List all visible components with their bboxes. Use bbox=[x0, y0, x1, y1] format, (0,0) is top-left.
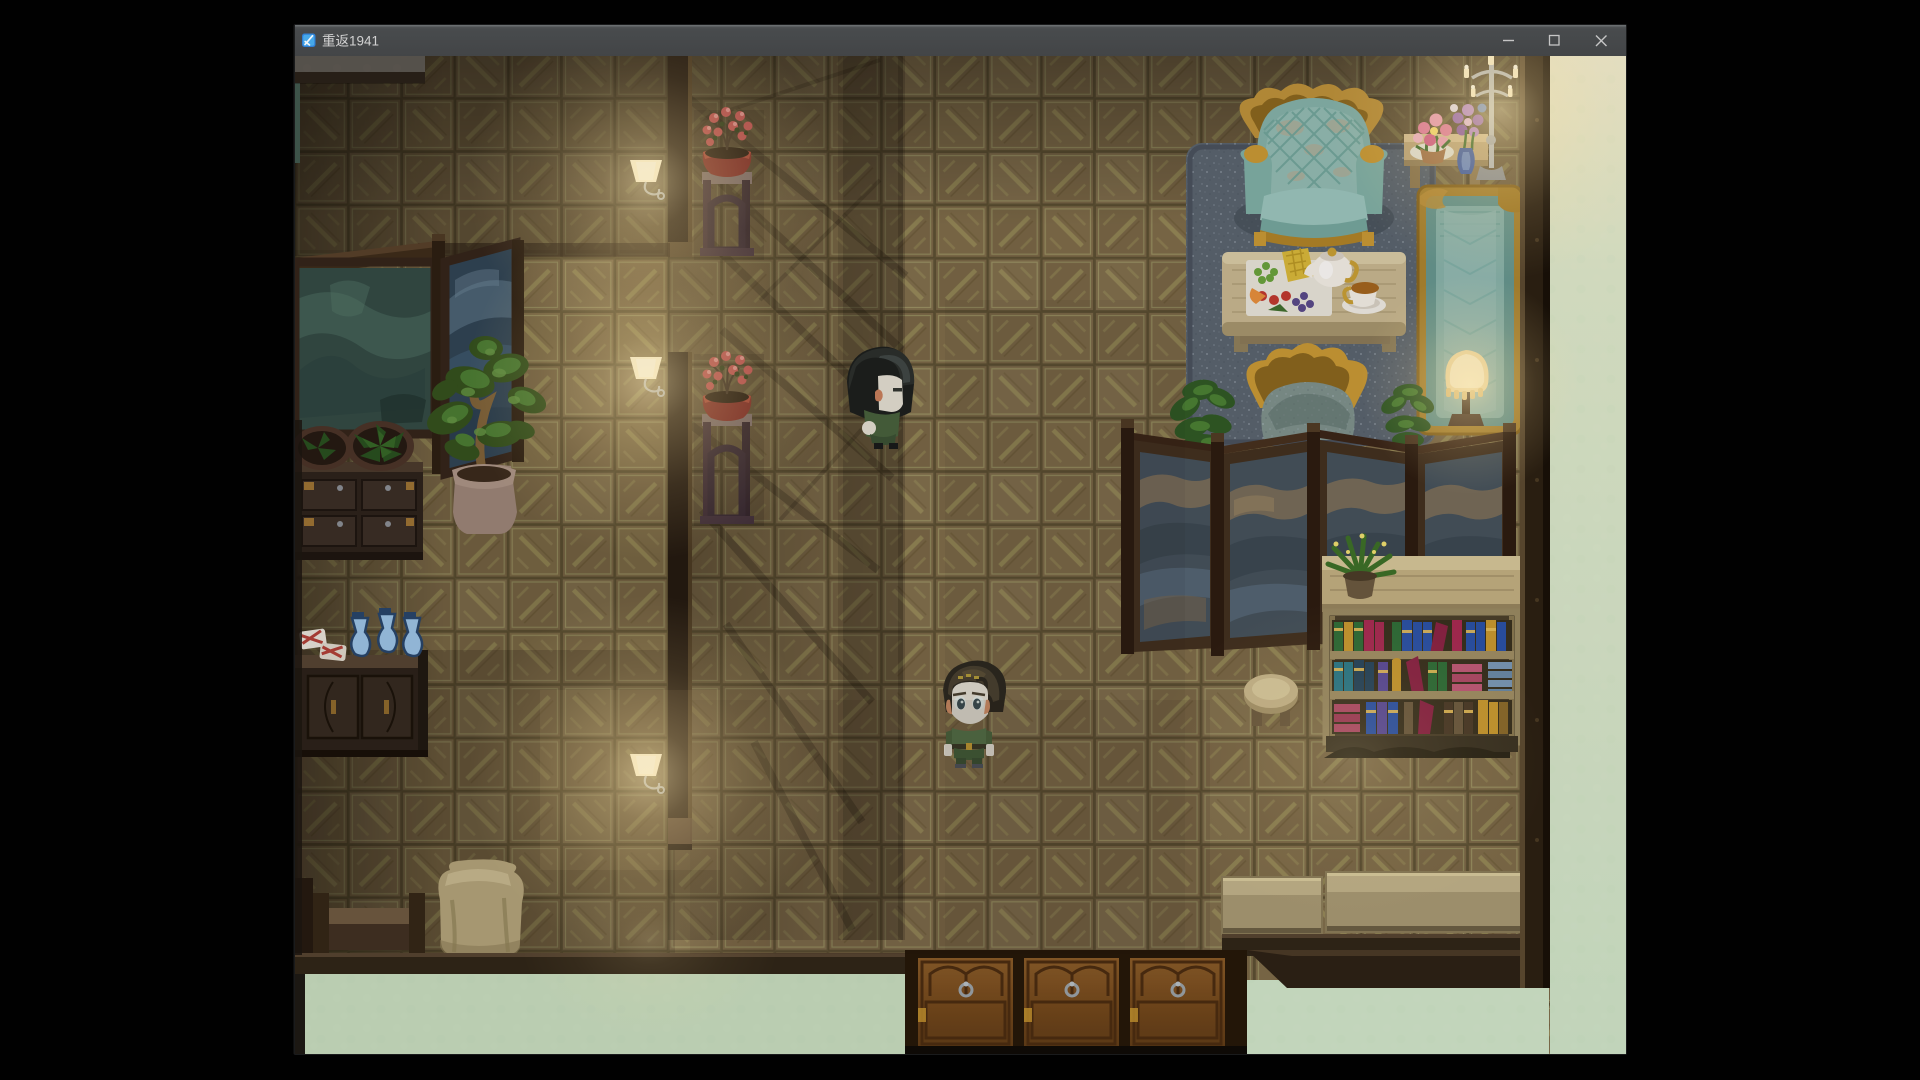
svg-text:重返1941: 重返1941 bbox=[322, 34, 379, 49]
